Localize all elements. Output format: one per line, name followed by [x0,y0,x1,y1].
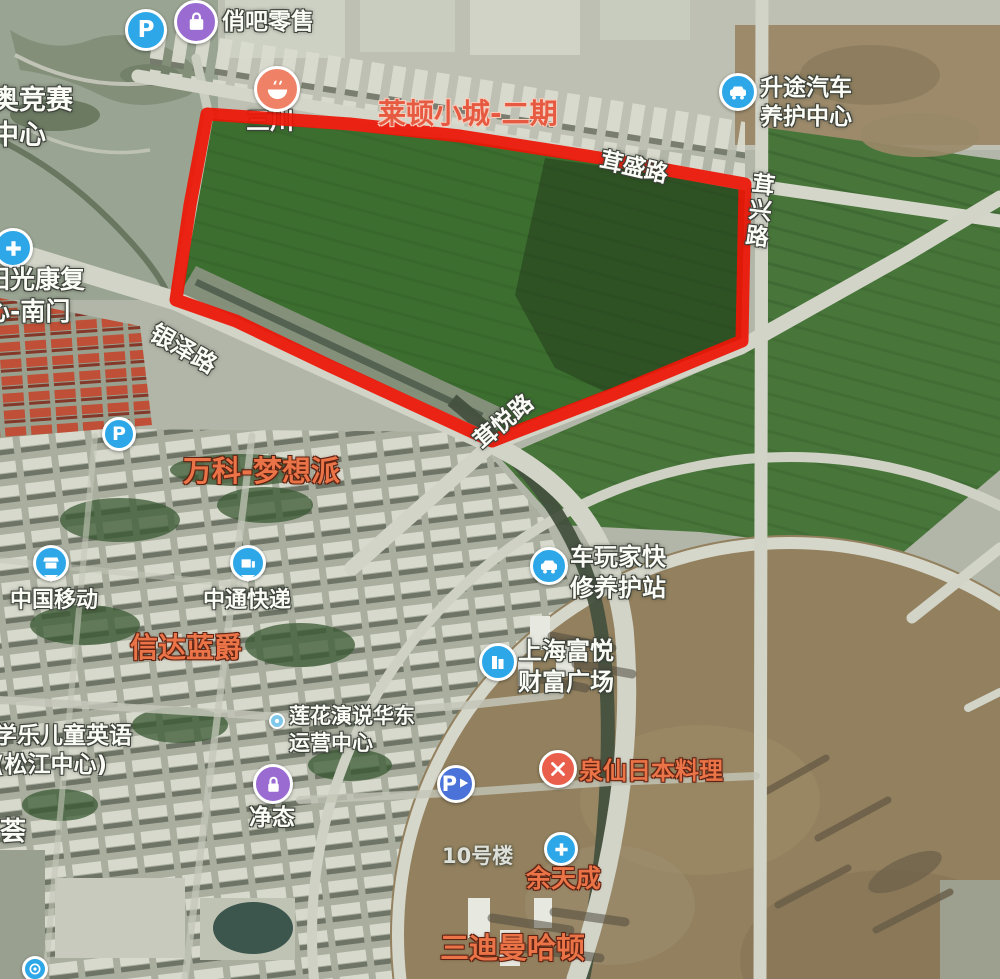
storefront-icon [33,545,69,581]
pharmacy-icon [544,832,578,866]
car-icon [530,547,568,585]
label-sandi-manhadun: 三迪曼哈顿 [440,930,585,967]
poi-jingtai-label: 净态 [249,804,295,833]
lock-icon [253,764,293,804]
poi-fuyue-guangchang-label: 上海富悦财富广场 [518,636,614,697]
label-road-yinze: 银泽路 [144,318,222,381]
poi-yangguang-kangfu-label: 阳光康复心-南门 [0,264,85,328]
location-icon [22,956,48,979]
poi-zhongtong-kuaidi-label: 中通快递 [203,587,291,615]
buildings-icon [479,643,517,681]
label-aojingsai-zhongxin: 奥竞赛中心 [0,84,73,153]
food-bowl-icon [254,66,300,112]
label-laidun-xiaocheng-erqi: 莱顿小城-二期 [378,96,558,132]
label-road-rongyue: 茸悦路 [469,389,541,456]
parking-icon: P [102,417,136,451]
label-road-rongxing: 茸兴路 [737,170,776,251]
car-icon [719,73,757,111]
label-hui-partial: 荟 [0,816,26,849]
poi-lianhua-yanshuo-label: 莲花演说华东运营中心 [289,703,415,757]
restaurant-icon [539,750,577,788]
label-xinda-lanjue: 信达蓝爵 [130,630,242,666]
parking-entry-icon: P‣ [437,765,475,803]
courier-icon [230,545,266,581]
poi-quanxian-liaoli-label: 泉仙日本料理 [579,756,723,787]
hospital-icon [0,228,33,268]
shopping-bag-icon [174,0,218,44]
map-canvas[interactable]: 三川 奥竞赛中心莱顿小城-二期茸盛路茸兴路银泽路茸悦路万科-梦想派信达蓝爵学乐儿… [0,0,1000,979]
parking-icon: P [125,9,167,51]
poi-shengtu-qiche-label: 升途汽车养护中心 [760,74,852,133]
label-xuele-ertong-yingyu: 学乐儿童英语(松江中心) [0,722,132,781]
poi-qiaoba-lingshou-label: 俏吧零售 [222,8,314,37]
poi-zhongguo-yidong-label: 中国移动 [10,587,98,615]
label-10haolou: 10号楼 [442,843,513,870]
label-road-rongsheng: 茸盛路 [597,146,671,190]
labels-layer: 奥竞赛中心莱顿小城-二期茸盛路茸兴路银泽路茸悦路万科-梦想派信达蓝爵学乐儿童英语… [0,0,1000,979]
poi-chewanjia-label: 车玩家快修养护站 [570,542,666,603]
poi-yutiancheng-label: 余天成 [526,863,601,895]
dot-icon [269,713,285,729]
label-wanke-mengxiangpai: 万科-梦想派 [183,453,340,490]
